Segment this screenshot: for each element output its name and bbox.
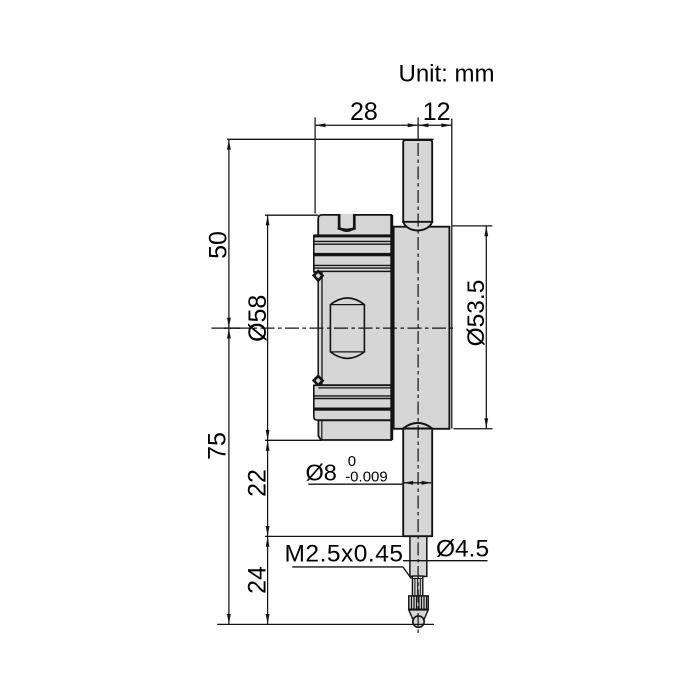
svg-text:Ø8: Ø8 — [306, 459, 337, 485]
svg-text:Unit: mm: Unit: mm — [399, 60, 495, 87]
svg-text:Ø4.5: Ø4.5 — [436, 536, 489, 563]
svg-text:22: 22 — [243, 469, 271, 497]
svg-text:50: 50 — [204, 231, 232, 259]
svg-text:24: 24 — [244, 566, 272, 594]
svg-text:M2.5x0.45: M2.5x0.45 — [285, 541, 404, 568]
svg-text:28: 28 — [350, 98, 378, 126]
svg-text:0: 0 — [348, 453, 356, 470]
svg-text:Ø53.5: Ø53.5 — [463, 280, 490, 347]
svg-text:12: 12 — [423, 98, 451, 126]
svg-text:Ø58: Ø58 — [244, 295, 272, 342]
svg-text:-0.009: -0.009 — [345, 469, 388, 486]
svg-text:75: 75 — [203, 432, 231, 460]
